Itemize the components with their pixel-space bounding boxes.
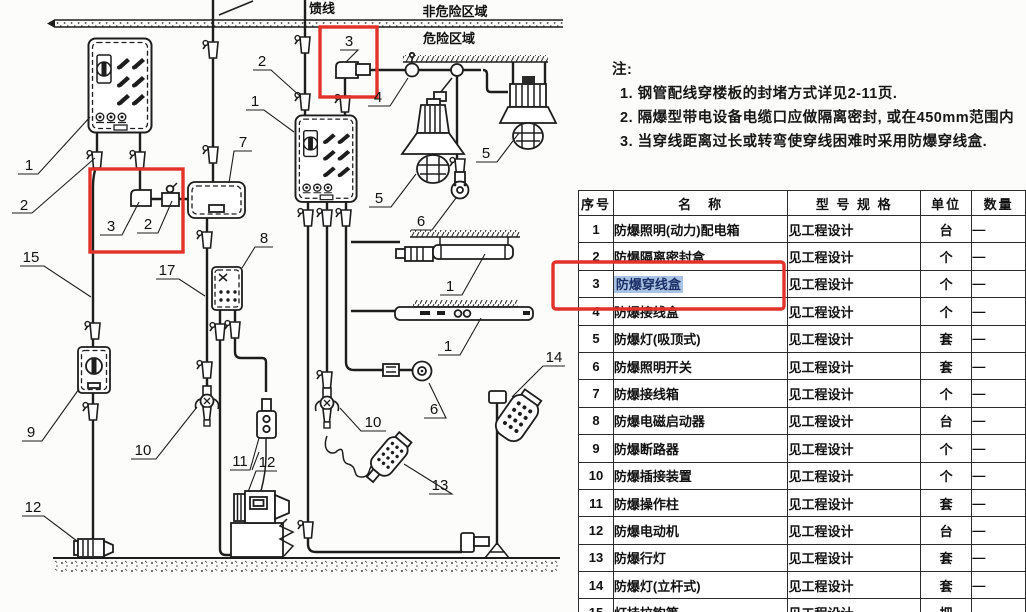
- callout-11-socket: 11: [232, 453, 248, 470]
- table-row: 13 防爆行灯 见工程设计 套 —: [579, 544, 1026, 571]
- ground-line: [53, 558, 560, 572]
- pull-box-elbow-left: [131, 183, 179, 206]
- callout-9-breaker: 9: [27, 424, 35, 441]
- note-line-3: 3. 当穿线距离过长或转弯使穿线困难时采用防爆穿线盒.: [620, 130, 1014, 154]
- callout-numbers: 1 2 15 9 12 3 2 17 7 8 2 1 3 4 5 5 6 6 1…: [20, 33, 563, 516]
- callout-2-left-stub: 2: [20, 197, 28, 214]
- callout-1-left-box: 1: [25, 157, 33, 174]
- fluorescent-mount-rails: [410, 230, 520, 307]
- motor-right: [231, 491, 293, 557]
- table-row: 4 防爆接线盒 见工程设计 个 —: [579, 298, 1026, 325]
- callout-10-plug-right: 10: [365, 414, 382, 431]
- conduits: [93, 0, 545, 555]
- hazardous-zone-label: 危险区域: [423, 31, 475, 46]
- motor-left: [74, 539, 113, 557]
- screenshot-root: 注: 1. 钢管配线穿楼板的封堵方式详见2-11页. 2. 隔爆型带电设备电缆口…: [0, 0, 1026, 612]
- circuit-breaker-box: [78, 347, 110, 393]
- callout-14-pole-lamp: 14: [546, 349, 563, 366]
- pendant-lamp: [402, 92, 464, 183]
- callout-3-elbow-top: 3: [345, 33, 353, 50]
- callout-2-union-left: 2: [144, 216, 152, 233]
- junction-box: [188, 182, 245, 218]
- plug-device-left: [196, 386, 219, 426]
- hook-box: [451, 64, 463, 76]
- red-highlight-box-left: [90, 169, 183, 252]
- table-row: 7 防爆接线箱 见工程设计 个 —: [579, 380, 1026, 407]
- notes-block: 注: 1. 钢管配线穿楼板的封堵方式详见2-11页. 2. 隔爆型带电设备电缆口…: [612, 58, 1014, 154]
- red-highlight-box-top: [320, 27, 377, 97]
- table-row-highlighted: 3 防爆穿线盒 见工程设计 个 —: [579, 270, 1026, 297]
- col-header-qty: 数量: [972, 191, 1026, 216]
- socket-receptacle: [257, 399, 276, 438]
- lighting-switch-lower: [383, 362, 432, 381]
- non-hazardous-zone-label: 非危险区域: [422, 4, 487, 19]
- callout-12-motor-left: 12: [25, 499, 42, 516]
- selected-text[interactable]: 防爆穿线盒: [614, 276, 683, 293]
- table-row: 10 防爆插接装置 见工程设计 个 —: [579, 462, 1026, 489]
- coiled-cord: [325, 436, 376, 477]
- hazard-ceiling: [403, 55, 548, 62]
- table-row: 11 防爆操作柱 见工程设计 套 —: [579, 489, 1026, 516]
- col-header-unit: 单位: [921, 191, 972, 216]
- table-row: 12 防爆电动机 见工程设计 台 —: [579, 517, 1026, 544]
- callout-17-conduit: 17: [159, 262, 176, 279]
- note-line-1: 1. 钢管配线穿楼板的封堵方式详见2-11页.: [620, 82, 1014, 106]
- table-row: 1 防爆照明(动力)配电箱 见工程设计 台 —: [579, 216, 1026, 243]
- ceiling-slab: [47, 19, 563, 28]
- callout-13-hand-lamp: 13: [432, 477, 449, 494]
- callout-8-starter: 8: [260, 230, 268, 247]
- table-row: 9 防爆断路器 见工程设计 个 —: [579, 435, 1026, 462]
- table-row: 2 防爆隔离密封盒 见工程设计 个 —: [579, 243, 1026, 270]
- callout-6-switch-upper: 6: [417, 213, 425, 230]
- callout-1-mid-box: 1: [251, 93, 259, 110]
- callout-12-motor-right: 12: [259, 454, 276, 471]
- callout-1-fluor-lower: 1: [444, 338, 452, 355]
- conduit-couplings: [83, 36, 465, 538]
- hand-lamp: [361, 430, 415, 488]
- fluorescent-fixture-upper: [396, 237, 513, 261]
- table-row-clipped: 15 灯挂拉钩等 见工程设计 把 —: [579, 599, 1026, 612]
- callout-5-pendant: 5: [375, 190, 383, 207]
- note-line-2: 2. 隔爆型带电设备电缆口应做隔离密封, 或在450mm范围内: [620, 106, 1014, 130]
- distribution-box-middle: [295, 115, 356, 201]
- table-row: 8 防爆电磁启动器 见工程设计 台 —: [579, 407, 1026, 434]
- callout-15-conduit: 15: [23, 249, 40, 266]
- callout-10-plug-left: 10: [135, 442, 152, 459]
- callout-3-elbow-left: 3: [107, 218, 115, 235]
- callout-2-feeder: 2: [258, 53, 266, 70]
- flexible-spring: [280, 519, 293, 556]
- notes-title: 注:: [612, 58, 1014, 82]
- feeder-label: 馈线: [309, 1, 335, 16]
- table-row: 14 防爆灯(立杆式) 见工程设计 套 —: [579, 572, 1026, 599]
- magnetic-starter: [212, 267, 242, 310]
- distribution-box-left: [89, 39, 152, 133]
- ceiling-lamp: [500, 76, 556, 149]
- callout-5-ceiling: 5: [482, 145, 490, 162]
- bom-table: 序号 名 称 型 号 规 格 单位 数量 1 防爆照明(动力)配电箱 见工程设计…: [578, 190, 1026, 612]
- callout-1-fluor-upper: 1: [446, 278, 454, 295]
- pull-box-elbow-top: [336, 62, 370, 78]
- table-row: 6 防爆照明开关 见工程设计 套 —: [579, 352, 1026, 379]
- col-header-no: 序号: [579, 191, 614, 216]
- callout-6-switch-lower: 6: [430, 401, 438, 418]
- table-row: 5 防爆灯(吸顶式) 见工程设计 套 —: [579, 325, 1026, 352]
- col-header-name: 名 称: [613, 191, 788, 216]
- fluorescent-fixture-lower: [395, 307, 533, 320]
- col-header-spec: 型 号 规 格: [788, 191, 921, 216]
- bom-table-wrap: 序号 名 称 型 号 规 格 单位 数量 1 防爆照明(动力)配电箱 见工程设计…: [578, 190, 1026, 612]
- lighting-switch-upper: [452, 172, 469, 199]
- pole-lamp: [461, 386, 545, 558]
- table-header-row: 序号 名 称 型 号 规 格 单位 数量: [579, 191, 1026, 216]
- callout-leaders: [12, 50, 565, 541]
- callout-7-junction-box: 7: [239, 134, 247, 151]
- callout-4-seal-fitting: 4: [374, 89, 382, 106]
- sealing-fitting: [406, 53, 419, 77]
- plug-device-right: [316, 388, 339, 428]
